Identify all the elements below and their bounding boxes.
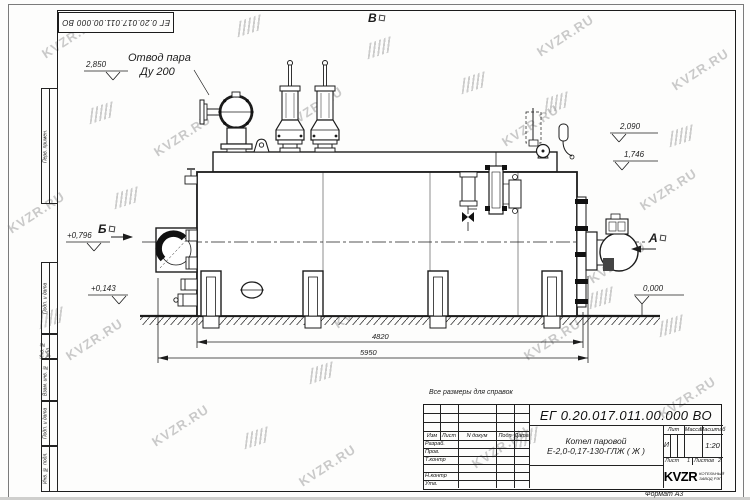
col-header-izm: Изм [424, 431, 440, 440]
sheets-value: 2 [718, 458, 721, 464]
elevation-0000: 0,000 [643, 284, 663, 293]
view-direction-icon [659, 235, 666, 242]
row-prov: Пров. [425, 448, 458, 456]
col-header-ndoc: N докум [458, 431, 496, 440]
masshtab-header: Масштаб [702, 425, 723, 434]
view-label-v: В [368, 11, 385, 25]
elevation-1746: 1,746 [624, 150, 644, 159]
manhole [240, 282, 264, 298]
steam-outlet-size-label: Ду 200 [140, 66, 175, 78]
lifting-lug [254, 139, 269, 152]
sheet-value: 1 [687, 458, 690, 464]
reference-note: Все размеры для справок [429, 389, 513, 396]
product-name: Котел паровой [566, 436, 627, 446]
sheet-label: Лист [665, 458, 679, 464]
view-label-b: Б [98, 222, 115, 236]
row-razrab: Разраб. [425, 440, 458, 448]
view-direction-icon [378, 15, 385, 22]
title-block: Изм Лист N докум Подп Дата Разраб. Пров.… [423, 404, 722, 490]
col-header-podp: Подп [496, 431, 514, 440]
col-header-list: Лист [440, 431, 458, 440]
safety-valves [276, 61, 339, 153]
format-label: Формат А3 [645, 491, 683, 498]
product-model: Е-2,0-0,17-130-ГЛЖ ( Ж ) [547, 446, 645, 456]
drawing-sheet: KVZR.RU KVZR.RU KVZR.RU KVZR.RU KVZR.RU … [0, 0, 750, 500]
scale-value: 1:20 [702, 434, 723, 457]
steam-outlet-valve [194, 70, 254, 152]
lit-header: Лит [663, 425, 684, 434]
row-blank [425, 464, 458, 472]
kvzr-logo-subtext-2: ЗАВОД РЭП [699, 477, 724, 482]
col-header-data: Дата [514, 431, 529, 440]
view-label-a: А [649, 231, 666, 245]
elevation-0143: +0,143 [91, 284, 116, 293]
kvzr-logo-text: KVZR [664, 469, 697, 484]
row-nkontr: Н.контр [425, 472, 458, 480]
row-tkontr: Т.контр [425, 456, 458, 464]
elevation-2850: 2,850 [86, 60, 106, 69]
elevation-0796: +0,796 [67, 231, 92, 240]
dim-5950: 5950 [360, 348, 377, 357]
lit-value: И [663, 434, 670, 457]
view-direction-icon [108, 226, 115, 233]
burner-assembly [575, 197, 638, 307]
elevation-2090: 2,090 [620, 122, 640, 131]
row-utv: Утв. [425, 480, 458, 488]
sheets-label: Листов [694, 458, 714, 464]
steam-outlet-label: Отвод пара [128, 52, 191, 64]
title-doc-number: ЕГ 0.20.017.011.00.000 ВО [529, 405, 723, 425]
dim-4820: 4820 [372, 332, 389, 341]
